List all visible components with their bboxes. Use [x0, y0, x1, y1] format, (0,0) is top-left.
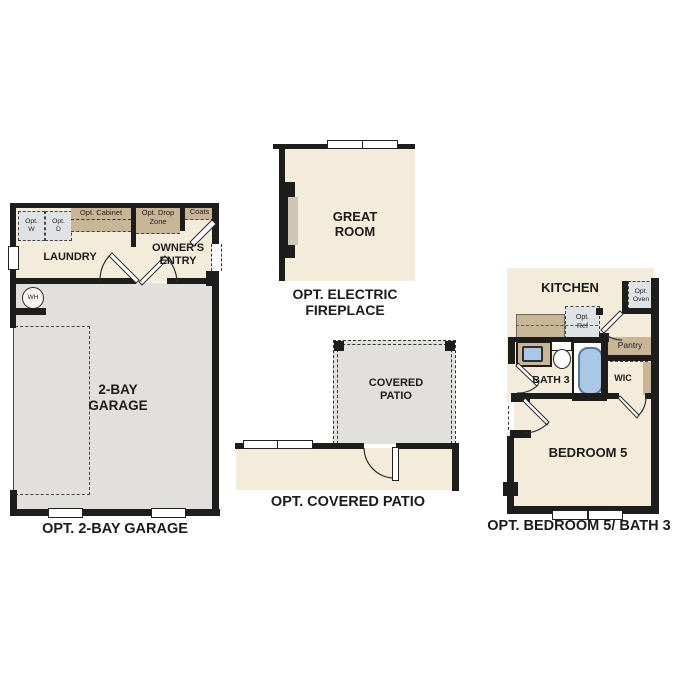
- caption-patio: OPT. COVERED PATIO: [248, 494, 448, 511]
- room-label-covered-patio: COVERED PATIO: [356, 377, 436, 402]
- room-label-pantry: Pantry: [608, 341, 652, 351]
- door-arc: [603, 332, 622, 340]
- caption-bedroom5: OPT. BEDROOM 5/ BATH 3: [476, 518, 682, 535]
- door-swings: [0, 0, 687, 687]
- door-arc: [524, 423, 548, 433]
- caption-garage: OPT. 2-BAY GARAGE: [15, 521, 215, 538]
- door-leaf: [618, 396, 639, 418]
- room-label-laundry: LAUNDRY: [30, 251, 110, 264]
- door-leaf: [523, 398, 549, 425]
- room-label-wic: WIC: [603, 373, 643, 383]
- room-label-garage: 2-BAY GARAGE: [58, 382, 178, 413]
- room-label-owners-entry: OWNER'S ENTRY: [142, 242, 214, 267]
- door-arc: [364, 448, 392, 478]
- door-leaf: [601, 311, 623, 333]
- floorplan-canvas: Opt. W Opt. D Opt. Cabinet Opt. Drop Zon…: [0, 0, 687, 687]
- caption-fireplace: OPT. ELECTRIC FIREPLACE: [284, 286, 406, 318]
- door-arc: [517, 385, 538, 393]
- room-label-great-room: GREAT ROOM: [305, 210, 405, 240]
- room-label-bedroom5: BEDROOM 5: [518, 446, 658, 461]
- door-arc: [638, 398, 646, 416]
- room-label-kitchen: KITCHEN: [510, 281, 630, 296]
- room-label-bath3: BATH 3: [514, 374, 588, 386]
- door-leaf: [109, 253, 139, 283]
